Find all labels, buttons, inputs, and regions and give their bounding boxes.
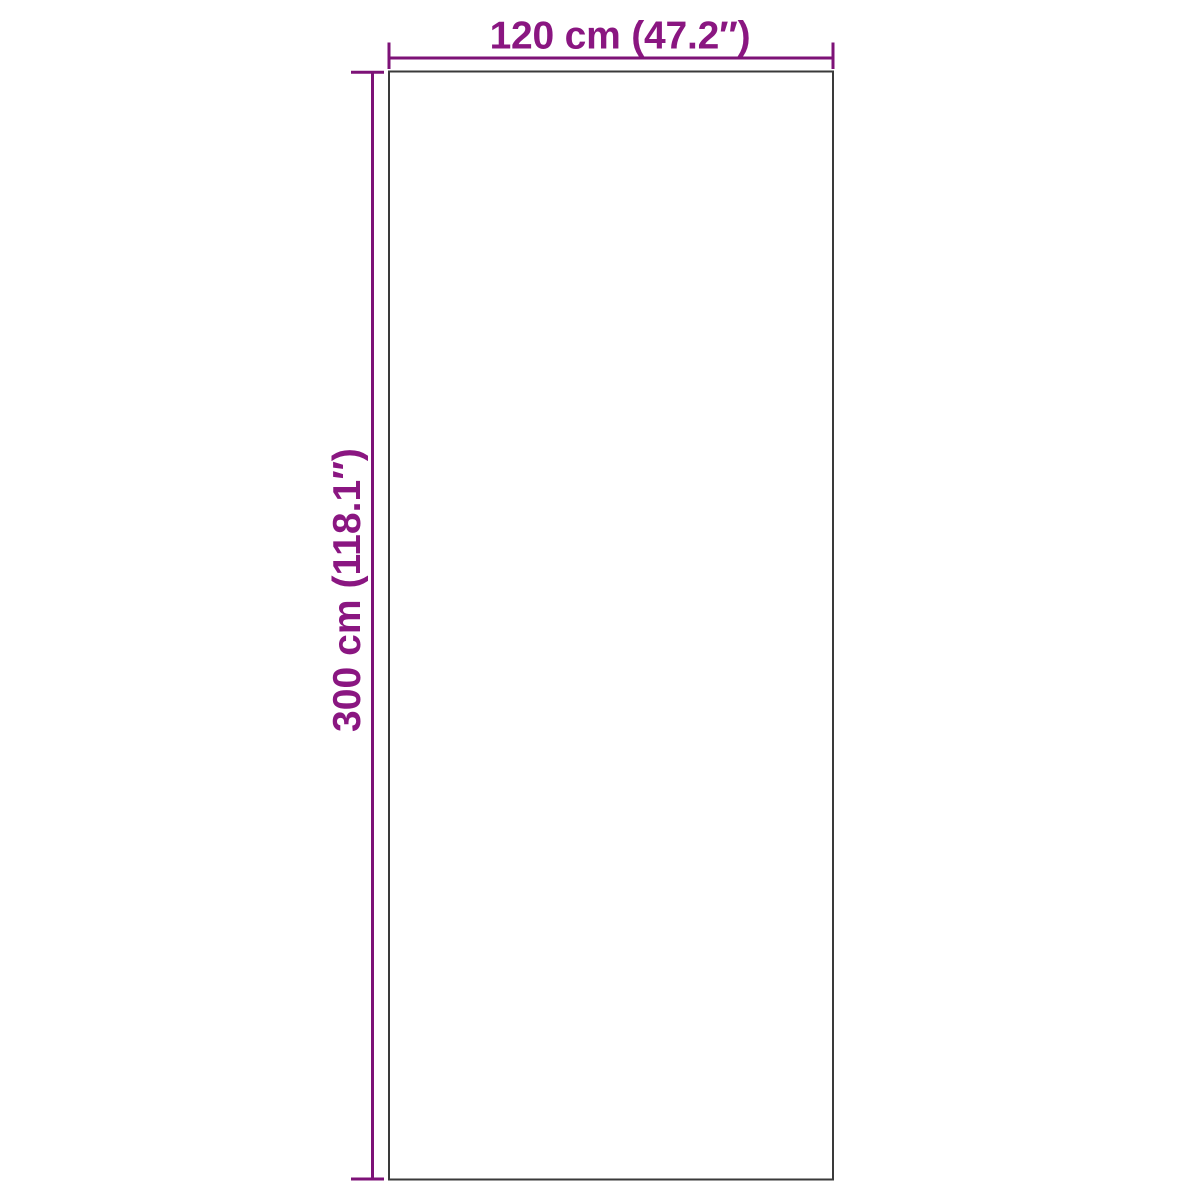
svg-text:120 cm (47.2″): 120 cm (47.2″) bbox=[490, 15, 751, 58]
svg-text:300 cm (118.1″): 300 cm (118.1″) bbox=[326, 448, 369, 732]
